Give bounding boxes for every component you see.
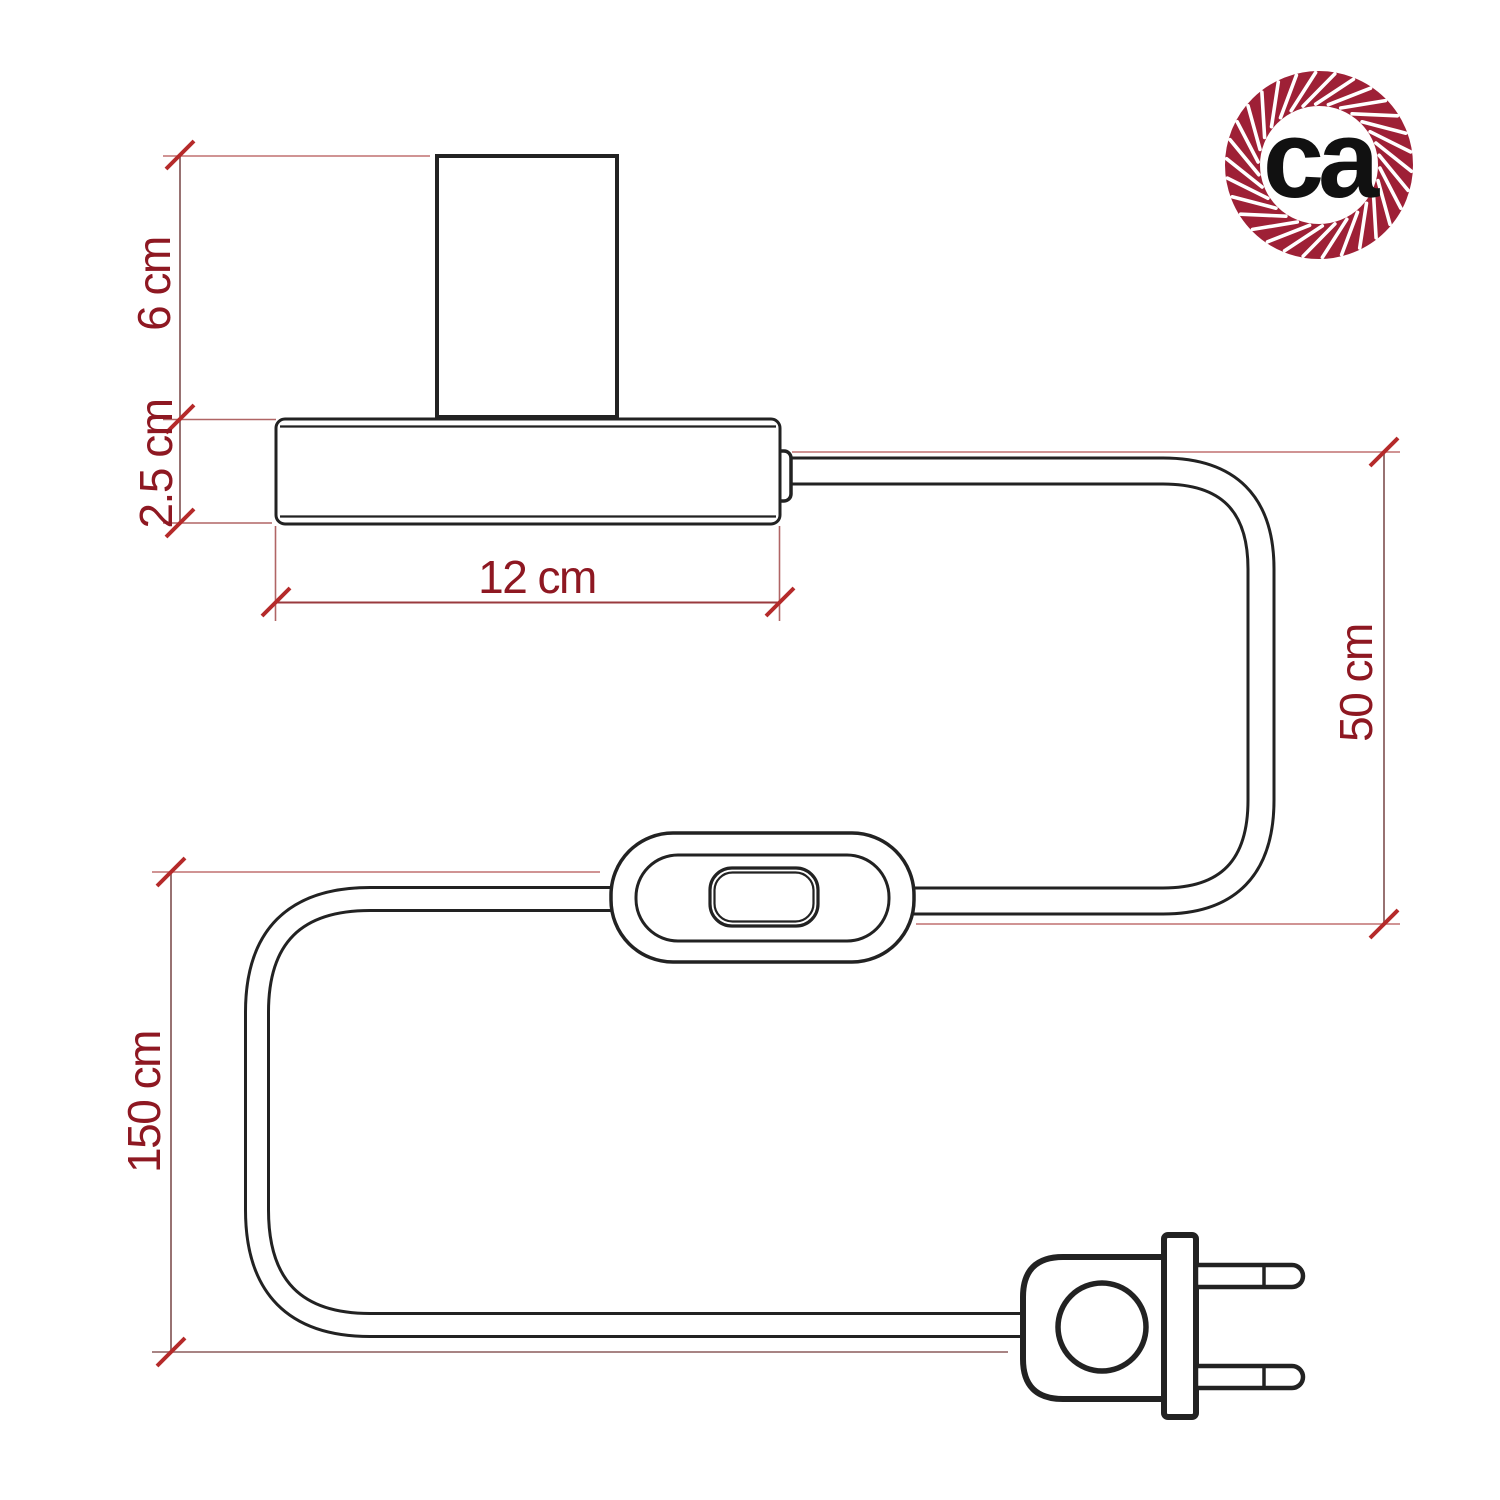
svg-text:6 cm: 6 cm [128, 237, 180, 331]
svg-text:ca: ca [1263, 98, 1380, 221]
svg-text:2.5 cm: 2.5 cm [130, 399, 182, 528]
svg-text:50 cm: 50 cm [1330, 624, 1382, 742]
svg-text:12 cm: 12 cm [478, 551, 596, 603]
svg-text:150 cm: 150 cm [118, 1031, 170, 1173]
